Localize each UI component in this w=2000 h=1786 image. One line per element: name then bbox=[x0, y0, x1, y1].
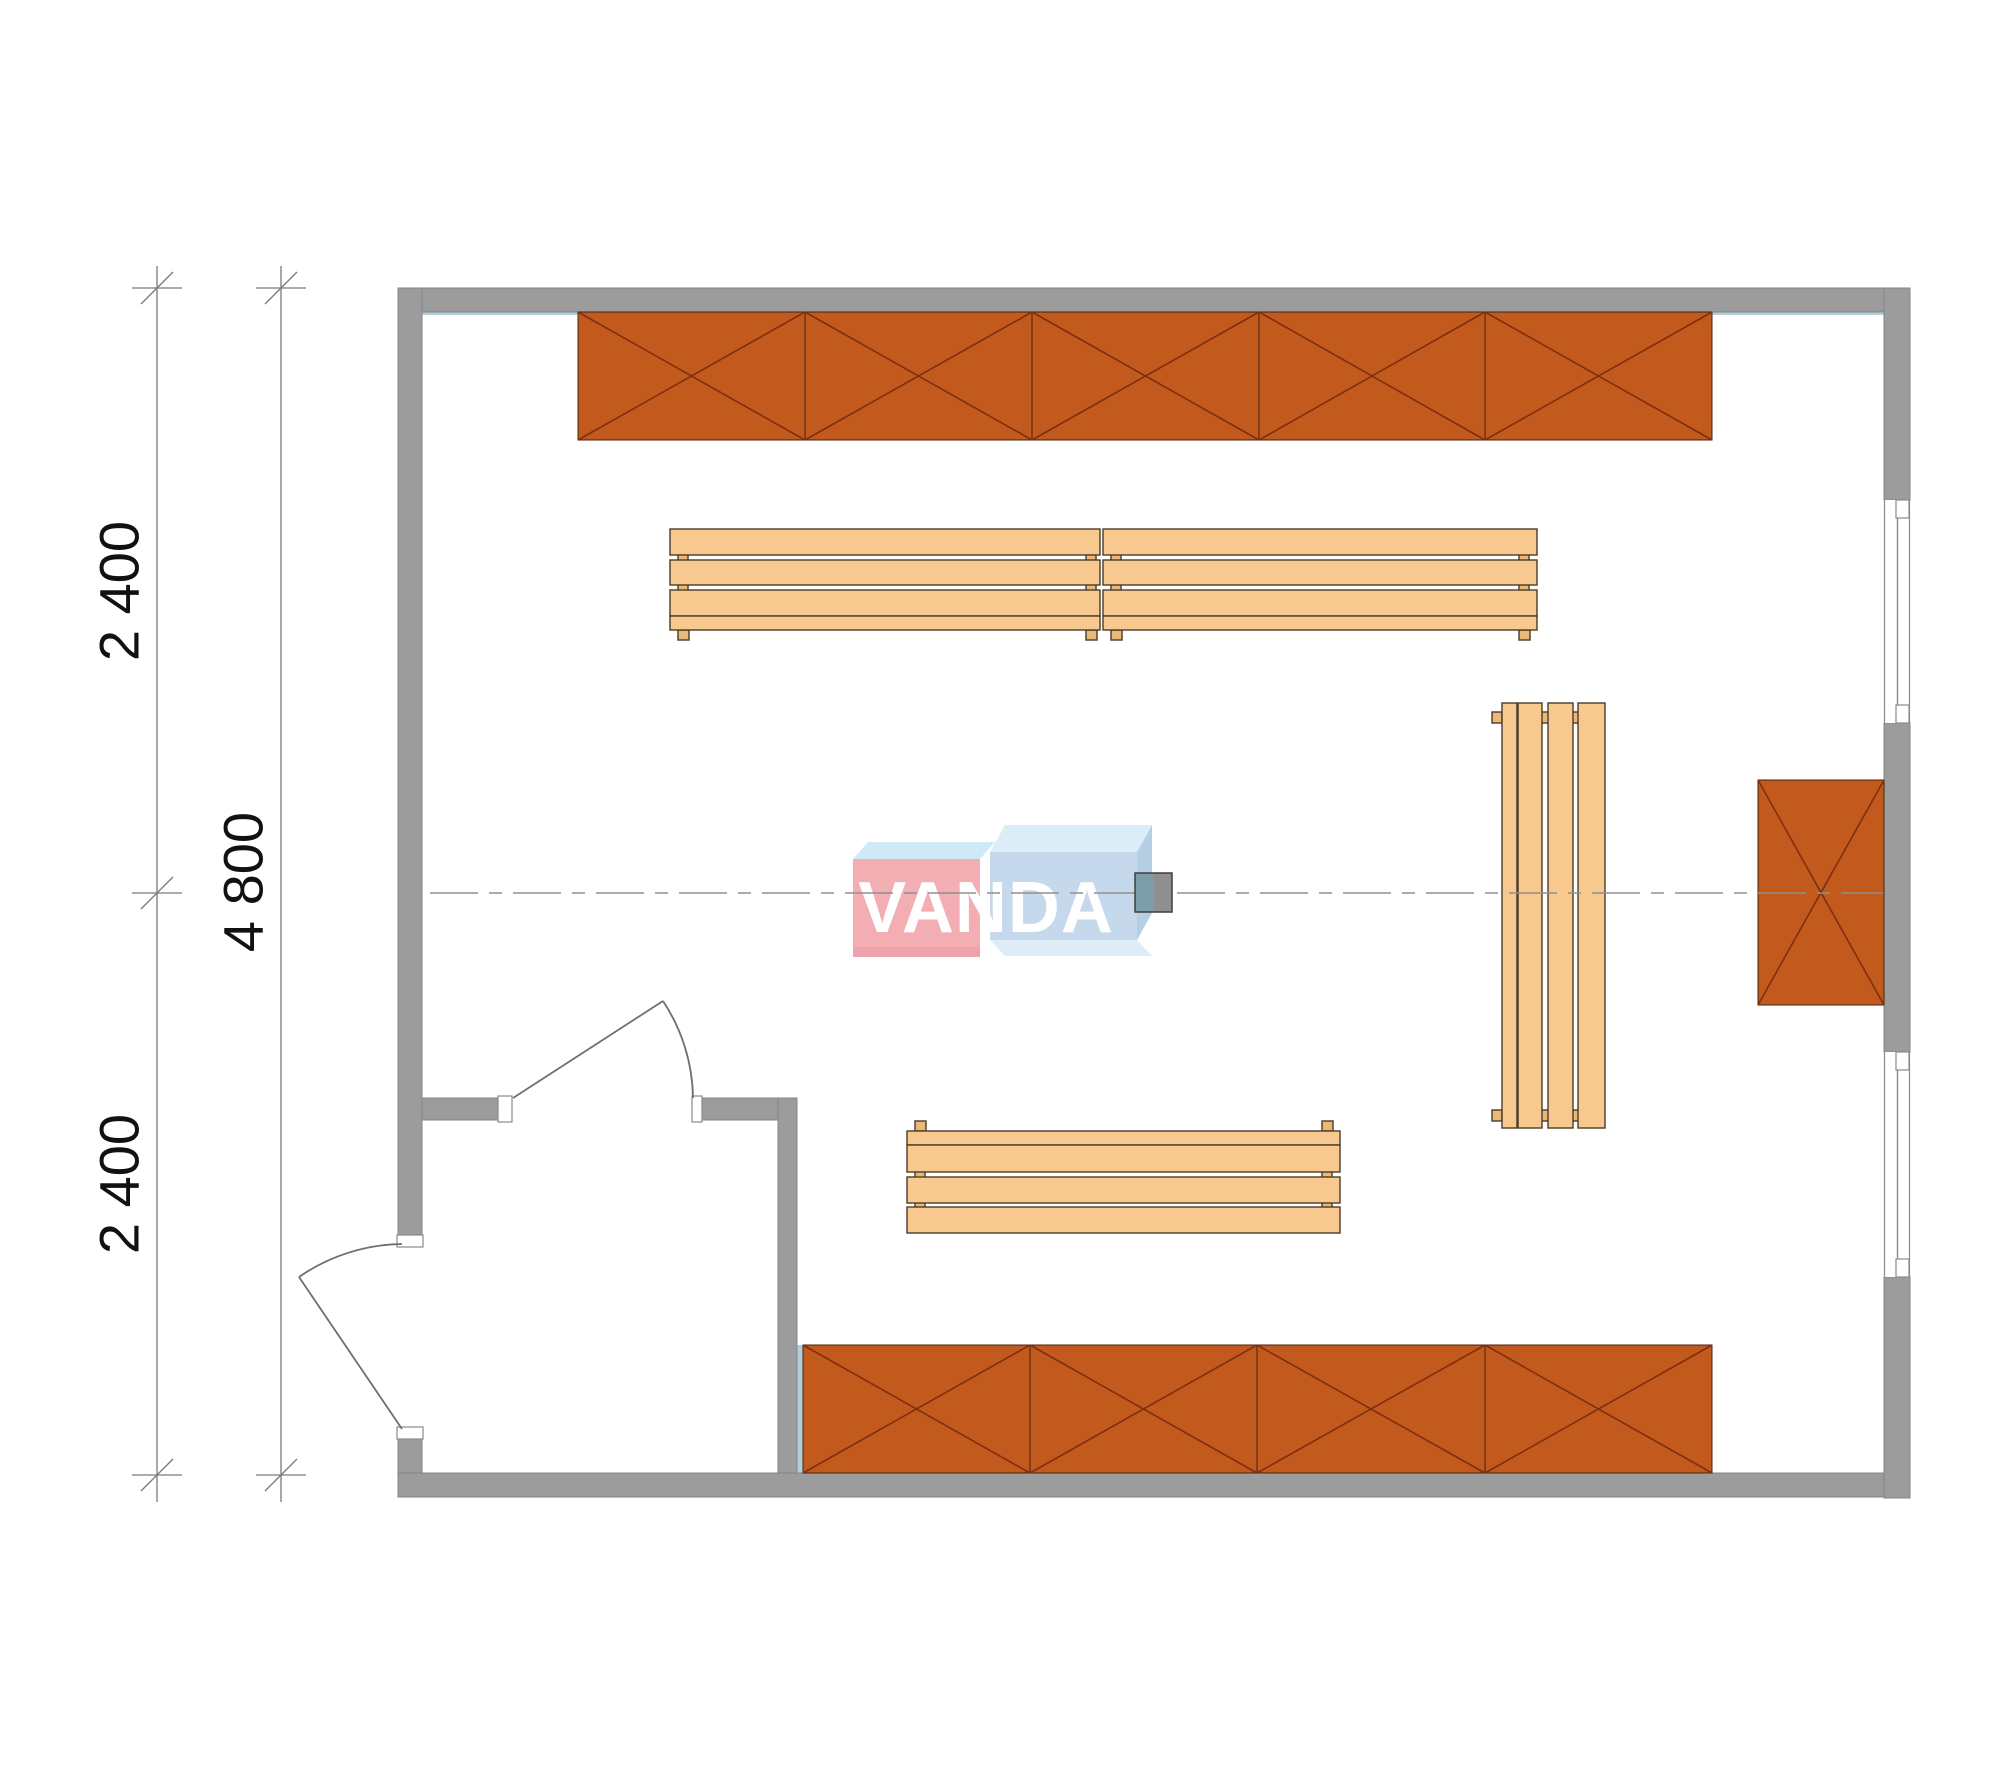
stove-right-half bbox=[1154, 873, 1172, 912]
dimension-label-top: 2 400 bbox=[88, 521, 151, 661]
watermark-logo: VANDA bbox=[853, 825, 1152, 957]
exterior-door bbox=[299, 1244, 402, 1429]
bench-boards bbox=[907, 1131, 1340, 1233]
stove bbox=[1135, 873, 1172, 912]
bench-boards bbox=[1103, 529, 1537, 630]
right-wall-upper bbox=[1884, 288, 1910, 500]
door-swing-arc bbox=[663, 1001, 693, 1098]
window-upper bbox=[1884, 500, 1910, 723]
doors bbox=[299, 1001, 693, 1429]
vestibule-wall-strip bbox=[797, 1345, 803, 1473]
door-jambs bbox=[397, 1096, 702, 1439]
bench-boards bbox=[1502, 703, 1605, 1128]
floor-plan-page: VANDA bbox=[0, 0, 2000, 1786]
bench-boards bbox=[670, 529, 1100, 630]
dimension-label-total: 4 800 bbox=[212, 812, 275, 952]
bottom-wall bbox=[398, 1473, 1910, 1497]
door-leaf bbox=[299, 1277, 402, 1429]
right-wall-lower bbox=[1884, 1277, 1910, 1498]
logo-pink-edge bbox=[853, 947, 980, 957]
top-bench-right bbox=[1103, 529, 1537, 640]
top-bench-left bbox=[670, 529, 1100, 640]
dimension-label-bottom: 2 400 bbox=[88, 1114, 151, 1254]
door-leaf bbox=[513, 1001, 663, 1098]
interior-wall-vertical bbox=[778, 1098, 797, 1473]
interior-door-jamb-left bbox=[498, 1096, 512, 1122]
logo-top-face bbox=[990, 825, 1152, 852]
interior-wall-left bbox=[422, 1098, 498, 1120]
bottom-bench bbox=[907, 1121, 1340, 1233]
left-wall-upper bbox=[398, 288, 422, 1235]
interior-door bbox=[513, 1001, 693, 1098]
window-frame-cap bbox=[1896, 705, 1909, 723]
stove-left-half bbox=[1135, 873, 1154, 912]
top-cabinet-row bbox=[578, 312, 1712, 440]
window-lower bbox=[1884, 1052, 1910, 1277]
logo-pink-top-face bbox=[853, 842, 995, 859]
exterior-door-jamb-top bbox=[397, 1235, 423, 1247]
vertical-bench bbox=[1492, 703, 1605, 1128]
bottom-cabinet-row bbox=[803, 1345, 1712, 1473]
door-swing-arc bbox=[299, 1244, 402, 1277]
floor-plan-drawing: VANDA bbox=[0, 0, 2000, 1786]
window-frame-cap bbox=[1896, 1259, 1909, 1277]
window-frame-cap bbox=[1896, 500, 1909, 518]
right-wall-middle bbox=[1884, 723, 1910, 1052]
dimension-annotations: 2 400 2 400 4 800 bbox=[88, 266, 306, 1502]
top-wall bbox=[398, 288, 1910, 312]
interior-door-jamb-right bbox=[692, 1096, 702, 1122]
watermark-text: VANDA bbox=[858, 868, 1114, 948]
window-frame-cap bbox=[1896, 1052, 1909, 1070]
